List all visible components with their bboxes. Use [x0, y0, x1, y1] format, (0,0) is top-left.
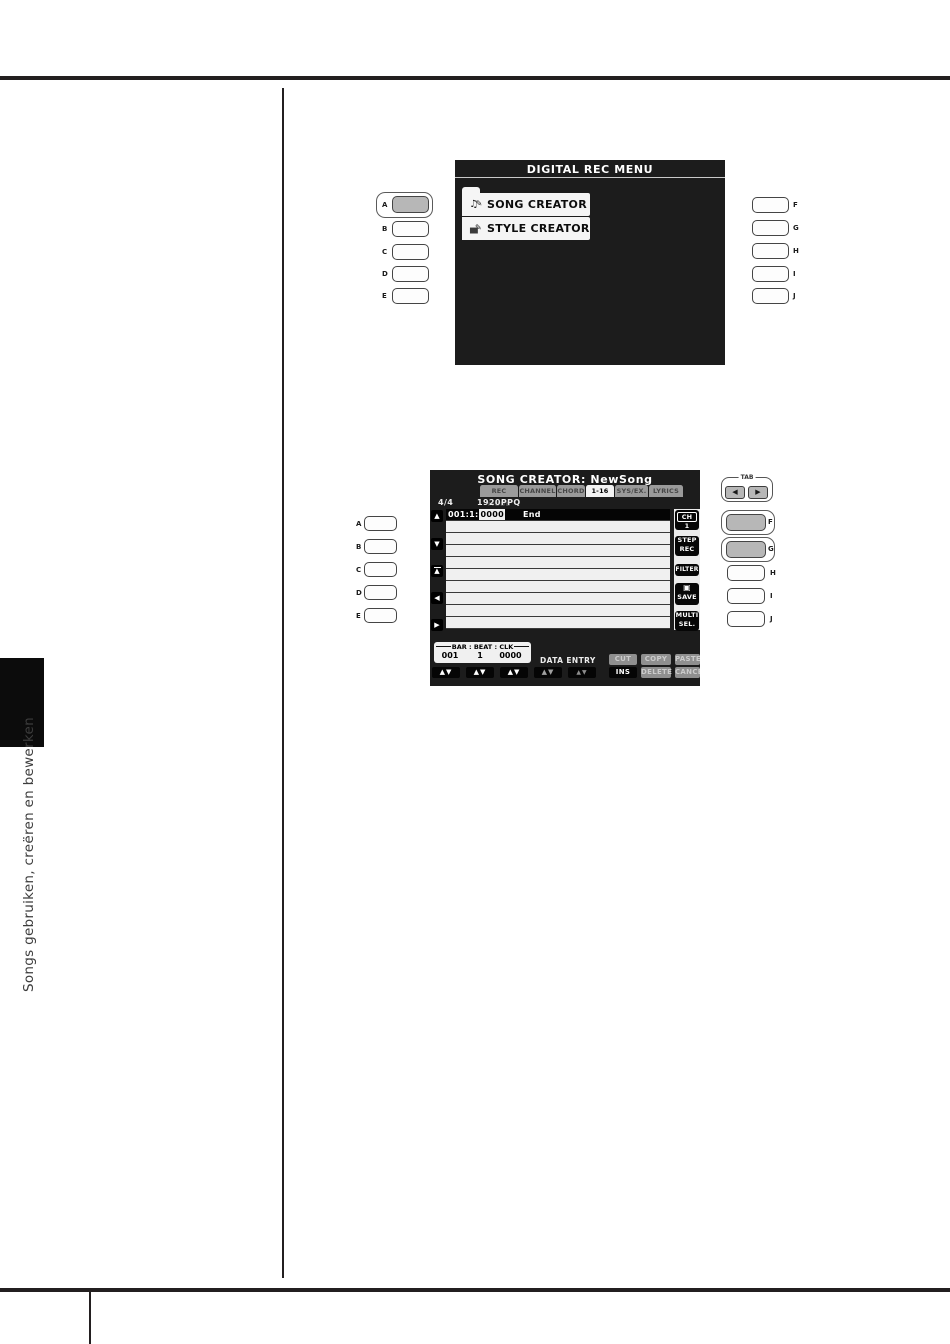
- event-row-empty: [446, 557, 670, 569]
- event-row-empty: [446, 581, 670, 593]
- scroll-left-icon[interactable]: ◀: [431, 592, 443, 604]
- panel2-button-g[interactable]: [726, 541, 766, 558]
- tab-channel[interactable]: CHANNEL: [519, 485, 556, 497]
- chapter-sidebar-text: Songs gebruiken, creëren en bewerken: [21, 746, 37, 992]
- panel2-button-i[interactable]: [727, 588, 765, 604]
- panel1-button-e[interactable]: [392, 288, 429, 304]
- data-entry-updown-button-2[interactable]: ▲▼: [568, 667, 596, 678]
- tab-bar: REC MODE CHANNEL CHORD 1-16 SYS/EX. LYRI…: [480, 485, 683, 497]
- tab-left-icon: ◀: [732, 488, 737, 496]
- time-signature: 4/4: [438, 498, 453, 507]
- tab-right-button[interactable]: ▶: [748, 486, 768, 499]
- event-name: End: [523, 509, 541, 520]
- button-h-label: H: [793, 248, 799, 255]
- data-entry-label: DATA ENTRY: [540, 656, 596, 665]
- beat-value: 1: [466, 651, 494, 661]
- button-c-label: C: [382, 249, 387, 256]
- event-row-empty: [446, 533, 670, 545]
- note-pencil-icon: ♫✎: [465, 199, 487, 210]
- scroll-right-icon[interactable]: ▶: [431, 619, 443, 631]
- tab-chord[interactable]: CHORD: [557, 485, 585, 497]
- top-rule: [0, 76, 950, 80]
- tab-rec-mode[interactable]: REC MODE: [480, 485, 518, 497]
- up-down-icon: ▲▼: [542, 668, 555, 676]
- menu-item-style-creator-label: STYLE CREATOR: [487, 222, 590, 235]
- event-row-empty: [446, 545, 670, 557]
- p2-button-e-label: E: [356, 613, 361, 620]
- button-a-label: A: [382, 202, 387, 209]
- p2-button-i-label: I: [770, 593, 773, 600]
- position-box-values: 001 1 0000: [434, 651, 531, 661]
- lcd-screen-song-creator: SONG CREATOR: NewSong REC MODE CHANNEL C…: [430, 470, 700, 686]
- panel2-button-b[interactable]: [364, 539, 397, 554]
- bottom-rule: [0, 1288, 950, 1292]
- paste-button[interactable]: PASTE: [675, 654, 700, 665]
- position-box-labels: BAR : BEAT : CLK: [434, 642, 531, 651]
- ch-label: CH: [677, 512, 697, 522]
- p2-button-j-label: J: [770, 616, 773, 623]
- button-i-label: I: [793, 271, 796, 278]
- scroll-down-icon[interactable]: ▼: [431, 538, 443, 550]
- clk-value: 0000: [494, 651, 527, 661]
- menu-item-song-creator[interactable]: ♫✎ SONG CREATOR: [462, 193, 590, 216]
- panel2-button-a[interactable]: [364, 516, 397, 531]
- panel1-button-i[interactable]: [752, 266, 789, 282]
- tab-lyrics[interactable]: LYRICS: [649, 485, 683, 497]
- tab-control: TAB ◀ ▶: [721, 477, 773, 502]
- panel2-button-e[interactable]: [364, 608, 397, 623]
- soft-button-step-rec[interactable]: STEP REC: [675, 536, 699, 556]
- copy-button[interactable]: COPY: [641, 654, 671, 665]
- button-e-label: E: [382, 293, 387, 300]
- panel1-button-h[interactable]: [752, 243, 789, 259]
- beat-updown-button[interactable]: ▲▼: [466, 667, 494, 678]
- button-g-label: G: [793, 225, 799, 232]
- tab-control-label: TAB: [739, 474, 756, 481]
- bracket-line: [514, 646, 529, 647]
- event-row-empty: [446, 569, 670, 581]
- clk-updown-button[interactable]: ▲▼: [500, 667, 528, 678]
- drum-pencil-icon: ▄✎: [465, 223, 487, 234]
- tab-right-icon: ▶: [755, 488, 760, 496]
- data-entry-updown-button-1[interactable]: ▲▼: [534, 667, 562, 678]
- p2-button-b-label: B: [356, 544, 361, 551]
- ins-button[interactable]: INS: [609, 667, 637, 678]
- p2-button-f-label: F: [768, 519, 773, 526]
- up-down-icon: ▲▼: [474, 668, 487, 676]
- up-down-icon: ▲▼: [440, 668, 453, 676]
- footer-divider: [89, 1292, 91, 1344]
- p2-button-h-label: H: [770, 570, 776, 577]
- soft-button-save[interactable]: ▣ SAVE: [675, 583, 699, 605]
- column-divider: [282, 88, 284, 1278]
- bar-value: 001: [434, 651, 466, 661]
- soft-button-multi-sel[interactable]: MULTI SEL.: [675, 611, 699, 631]
- event-row-selected[interactable]: 001:1: 0000 End: [446, 509, 670, 521]
- event-row-empty: [446, 593, 670, 605]
- panel2-button-j[interactable]: [727, 611, 765, 627]
- menu-item-song-creator-label: SONG CREATOR: [487, 198, 587, 211]
- event-row-empty: [446, 521, 670, 533]
- tab-sys-ex[interactable]: SYS/EX.: [615, 485, 648, 497]
- event-row-empty: [446, 617, 670, 629]
- button-b-label: B: [382, 226, 387, 233]
- panel1-button-f[interactable]: [752, 197, 789, 213]
- p2-button-c-label: C: [356, 567, 361, 574]
- event-clock-value[interactable]: 0000: [479, 509, 504, 520]
- event-list: 001:1: 0000 End: [446, 509, 670, 629]
- panel2-button-f[interactable]: [726, 514, 766, 531]
- panel1-button-g[interactable]: [752, 220, 789, 236]
- panel2-button-h[interactable]: [727, 565, 765, 581]
- event-position: 001:1:: [448, 509, 478, 520]
- soft-button-ch[interactable]: CH 1: [675, 510, 699, 530]
- manual-page: Songs gebruiken, creëren en bewerken A B…: [0, 0, 950, 1344]
- bracket-line: [436, 646, 451, 647]
- up-down-icon: ▲▼: [508, 668, 521, 676]
- jump-top-icon[interactable]: ▲: [431, 565, 443, 577]
- soft-button-filter[interactable]: FILTER: [675, 564, 699, 576]
- cut-button[interactable]: CUT: [609, 654, 637, 665]
- p2-button-a-label: A: [356, 521, 361, 528]
- panel1-button-d[interactable]: [392, 266, 429, 282]
- delete-button[interactable]: DELETE: [641, 667, 671, 678]
- p2-button-d-label: D: [356, 590, 362, 597]
- button-f-label: F: [793, 202, 798, 209]
- up-down-icon: ▲▼: [576, 669, 587, 676]
- disk-icon: ▣: [675, 583, 699, 593]
- panel2-button-d[interactable]: [364, 585, 397, 600]
- screen1-title-separator: [455, 177, 725, 178]
- position-box: BAR : BEAT : CLK 001 1 0000: [434, 642, 531, 663]
- button-j-label: J: [793, 293, 796, 300]
- tab-1-16[interactable]: 1-16: [586, 485, 614, 497]
- bar-updown-button[interactable]: ▲▼: [432, 667, 460, 678]
- cancel-button[interactable]: CANCEL: [675, 667, 700, 678]
- panel2-button-c[interactable]: [364, 562, 397, 577]
- menu-item-style-creator[interactable]: ▄✎ STYLE CREATOR: [462, 217, 590, 240]
- ch-value: 1: [675, 522, 699, 531]
- event-row-empty: [446, 605, 670, 617]
- panel1-button-c[interactable]: [392, 244, 429, 260]
- tab-left-button[interactable]: ◀: [725, 486, 745, 499]
- panel1-button-b[interactable]: [392, 221, 429, 237]
- lcd-screen-digital-rec-menu: DIGITAL REC MENU ♫✎ SONG CREATOR ▄✎ STYL…: [455, 160, 725, 365]
- p2-button-g-label: G: [768, 546, 774, 553]
- screen1-title: DIGITAL REC MENU: [455, 163, 725, 176]
- button-d-label: D: [382, 271, 388, 278]
- scroll-up-icon[interactable]: ▲: [431, 510, 443, 522]
- panel1-button-a[interactable]: [392, 196, 429, 213]
- panel1-button-j[interactable]: [752, 288, 789, 304]
- resolution-value: 1920PPQ: [477, 498, 521, 507]
